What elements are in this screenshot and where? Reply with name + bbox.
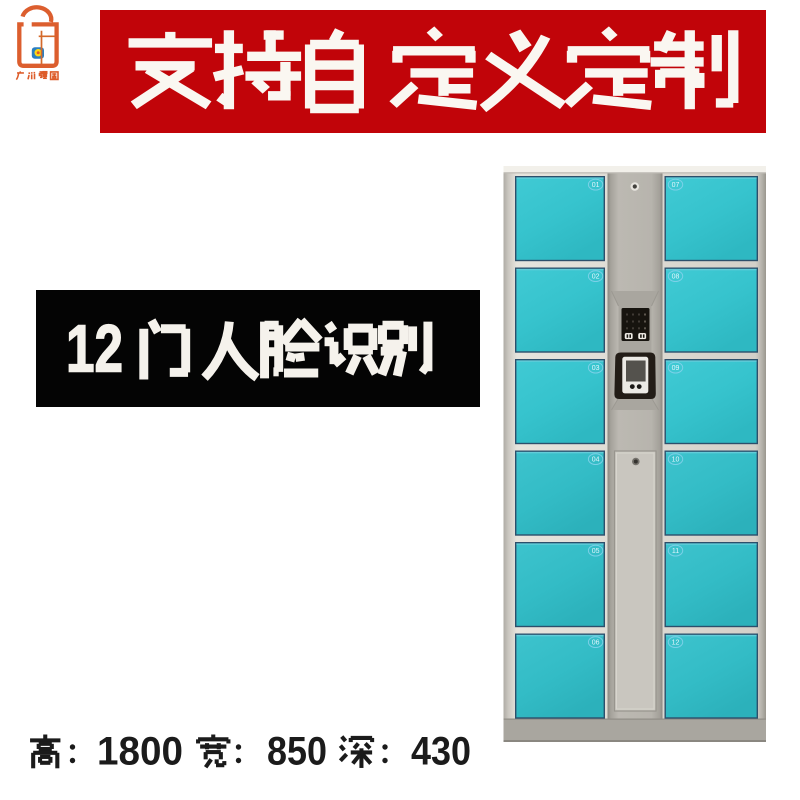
svg-text:12: 12 — [672, 640, 680, 647]
svg-text:02: 02 — [592, 274, 600, 281]
svg-text:06: 06 — [592, 640, 600, 647]
svg-text:11: 11 — [672, 548, 679, 555]
svg-text:03: 03 — [592, 365, 600, 372]
svg-text:01: 01 — [592, 182, 600, 189]
svg-text:07: 07 — [672, 182, 680, 189]
svg-text:850: 850 — [267, 730, 327, 774]
svg-text:04: 04 — [592, 457, 600, 464]
svg-text:12: 12 — [66, 312, 123, 387]
svg-text:10: 10 — [672, 457, 680, 464]
svg-text:08: 08 — [672, 274, 680, 281]
svg-text:430: 430 — [411, 730, 471, 774]
svg-text:05: 05 — [592, 548, 600, 555]
svg-text:1800: 1800 — [97, 730, 183, 774]
svg-text:09: 09 — [672, 365, 680, 372]
